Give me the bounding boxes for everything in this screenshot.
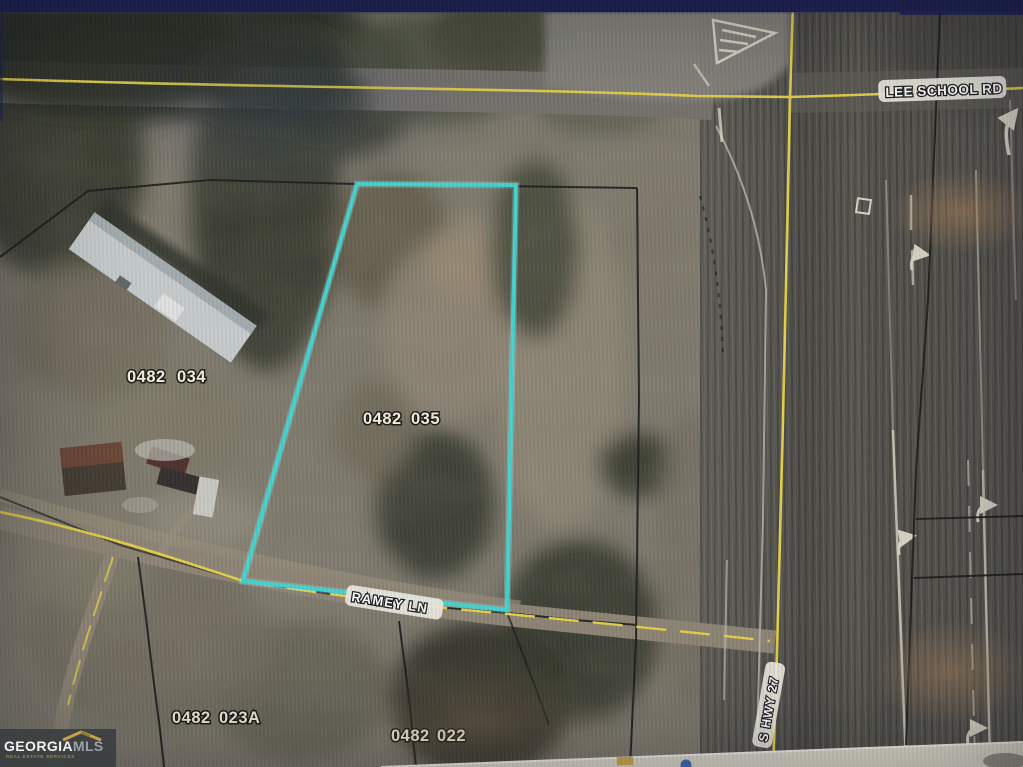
screen-photo: LEE SCHOOL RD RAMEY LN S HWY 27 0482 034… [0, 0, 1023, 767]
parcel-map-canvas[interactable]: LEE SCHOOL RD RAMEY LN S HWY 27 0482 034… [0, 0, 1023, 767]
photo-artifacts [0, 0, 1023, 767]
mls-roof-icon [60, 730, 104, 741]
screen-top-bezel [0, 0, 1023, 12]
brand-tagline: REAL ESTATE SERVICES [6, 754, 75, 759]
georgia-mls-watermark: GEORGIAMLS REAL ESTATE SERVICES [0, 729, 116, 767]
taskbar-icon-folder[interactable] [617, 757, 633, 766]
